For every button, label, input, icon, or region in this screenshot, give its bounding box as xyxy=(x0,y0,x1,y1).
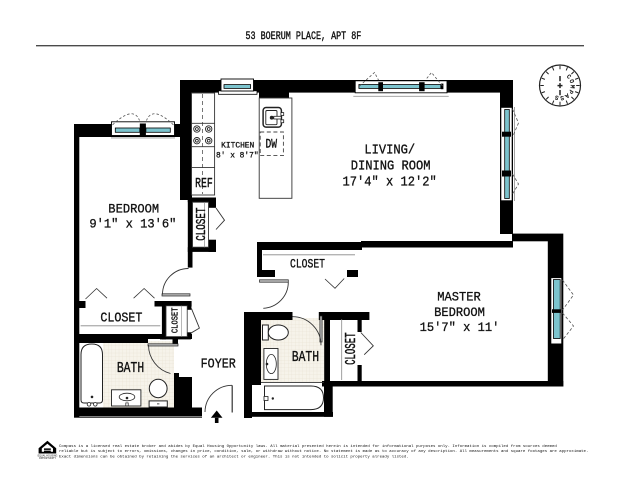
svg-text:LIVING/: LIVING/ xyxy=(364,142,415,158)
svg-text:BATH: BATH xyxy=(292,350,319,367)
svg-text:reliable but is subject to err: reliable but is subject to errors, omiss… xyxy=(59,449,588,454)
svg-text:REF: REF xyxy=(195,175,213,191)
svg-text:OPPORTUNITY: OPPORTUNITY xyxy=(39,457,57,460)
svg-text:9'1" x 13'6": 9'1" x 13'6" xyxy=(89,216,176,232)
svg-text:CLOSET: CLOSET xyxy=(171,307,181,333)
svg-text:8' x 8'7": 8' x 8'7" xyxy=(216,150,259,160)
svg-text:BEDROOM: BEDROOM xyxy=(108,201,159,217)
svg-text:Compass is a licensed real est: Compass is a licensed real estate broker… xyxy=(59,444,557,449)
svg-text:CLOSET: CLOSET xyxy=(343,333,360,365)
svg-text:CLOSET: CLOSET xyxy=(100,309,142,325)
svg-text:BEDROOM: BEDROOM xyxy=(434,304,485,320)
svg-text:FOYER: FOYER xyxy=(201,355,236,371)
svg-text:BATH: BATH xyxy=(117,361,144,378)
svg-text:17'4" x 12'2": 17'4" x 12'2" xyxy=(342,174,436,190)
svg-text:Exact dimensions can be obtain: Exact dimensions can be obtained by reta… xyxy=(59,455,409,460)
svg-text:KITCHEN: KITCHEN xyxy=(221,141,254,150)
svg-text:MASTER: MASTER xyxy=(437,289,481,305)
svg-text:15'7" x 11': 15'7" x 11' xyxy=(420,319,500,335)
svg-text:CLOSET: CLOSET xyxy=(290,259,325,273)
svg-text:DW: DW xyxy=(265,137,277,152)
svg-text:53 BOERUM PLACE, APT 8F: 53 BOERUM PLACE, APT 8F xyxy=(245,31,361,44)
svg-text:DINING ROOM: DINING ROOM xyxy=(351,158,431,174)
svg-text:CLOSET: CLOSET xyxy=(193,208,209,241)
